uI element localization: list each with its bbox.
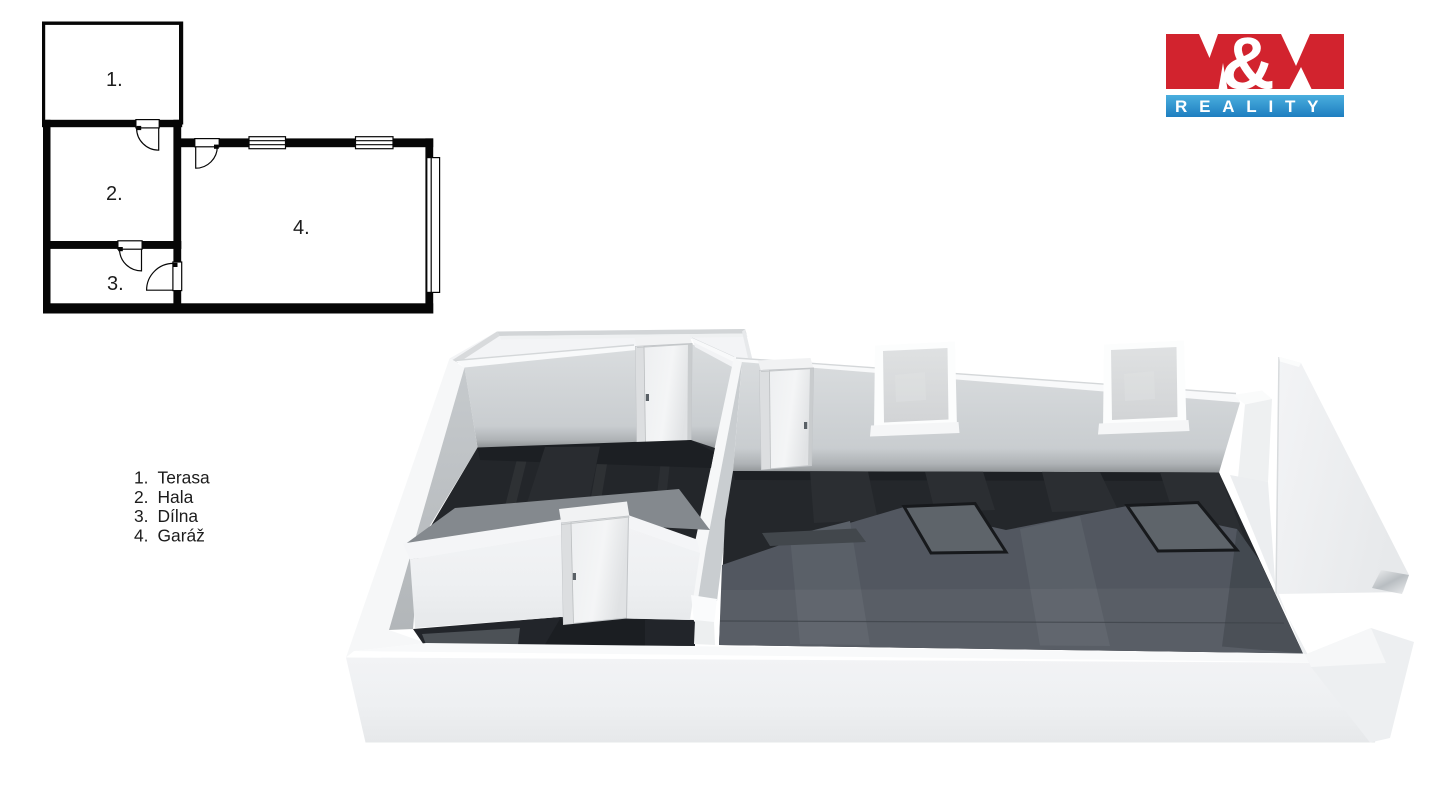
svg-text:Dílna: Dílna (158, 506, 199, 526)
svg-text:Terasa: Terasa (158, 468, 211, 488)
svg-text:4.: 4. (293, 217, 310, 239)
svg-text:2.: 2. (106, 183, 123, 205)
svg-text:1.: 1. (106, 69, 123, 91)
svg-text:Hala: Hala (158, 487, 194, 507)
svg-text:3.: 3. (134, 506, 149, 526)
svg-text:Garáž: Garáž (158, 525, 205, 545)
svg-text:2.: 2. (134, 487, 149, 507)
svg-text:1.: 1. (134, 468, 149, 488)
svg-text:4.: 4. (134, 525, 149, 545)
svg-text:REALITY: REALITY (1175, 97, 1330, 116)
svg-text:&: & (1221, 22, 1274, 105)
svg-text:3.: 3. (107, 273, 124, 295)
